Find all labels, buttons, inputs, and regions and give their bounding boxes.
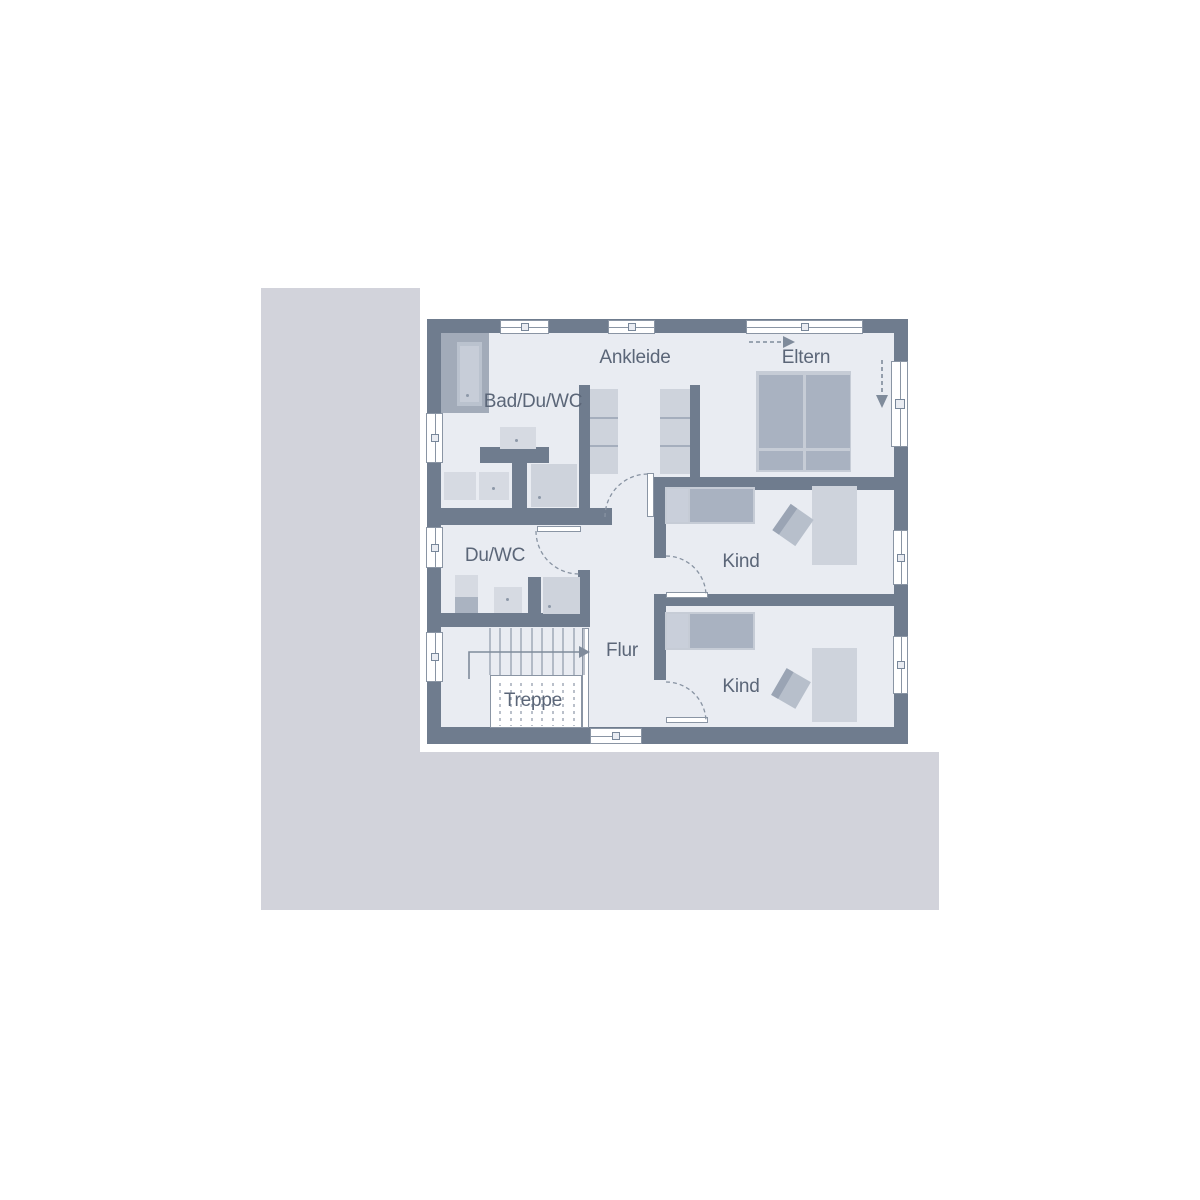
door-swing-arcs xyxy=(536,474,706,722)
room-label-ankleide: Ankleide xyxy=(599,347,670,369)
door-arc-duwc xyxy=(536,531,579,574)
room-label-du-wc: Du/WC xyxy=(465,545,525,567)
door-arc-child1 xyxy=(666,556,706,596)
window-direction-arrow-icon xyxy=(876,360,888,408)
room-label-flur: Flur xyxy=(606,640,638,662)
room-label-eltern: Eltern xyxy=(782,347,830,369)
room-label-bad-du-wc: Bad/Du/WC xyxy=(484,391,583,413)
floor-plan-page: Ankleide Eltern Bad/Du/WC Du/WC Kind Kin… xyxy=(0,0,1200,1200)
room-label-kind-1: Kind xyxy=(722,551,759,573)
door-arc-child2 xyxy=(666,682,706,722)
room-label-kind-2: Kind xyxy=(722,676,759,698)
room-label-treppe: Treppe xyxy=(504,690,562,712)
plan-linework xyxy=(0,0,1200,1200)
door-arc-ankleide xyxy=(605,474,648,517)
stair-direction-arrow-icon xyxy=(469,646,590,679)
